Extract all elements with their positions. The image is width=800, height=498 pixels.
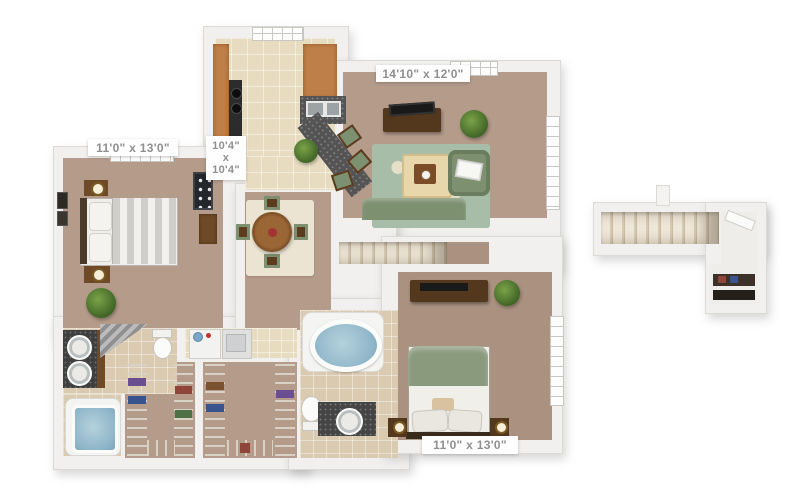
bedroom2-plant (494, 280, 520, 306)
hanging-clothes (206, 404, 224, 412)
interior-stairs (339, 242, 447, 264)
stored-shoes (240, 443, 250, 453)
toilet (153, 337, 172, 359)
kitchen-window (252, 27, 304, 41)
stove-burner (231, 103, 242, 114)
hanging-clothes (128, 378, 146, 386)
hanging-clothes (175, 386, 192, 394)
wall-art-frame-2 (57, 211, 68, 226)
dimension-label-bedroom1: 11'0" x 13'0" (88, 139, 178, 156)
washer-button (206, 333, 211, 338)
kitchen-dimension-width: 10'4" (212, 140, 240, 152)
vanity-sink (67, 361, 92, 386)
table-lamp (393, 421, 406, 434)
bed1-striped-duvet (112, 198, 177, 264)
counter-plant (294, 139, 318, 163)
bedroom1-dresser (199, 214, 217, 244)
floor-plan-canvas: 11'0" x 13'0" 10'4" x 10'4" 14'10" x 12'… (0, 0, 800, 498)
dimension-label-bedroom2: 11'0" x 13'0" (422, 436, 518, 454)
hanging-clothes (276, 390, 294, 398)
vanity-sink (67, 335, 92, 360)
roof-fin (656, 185, 670, 206)
closet-wire-shelf (147, 440, 175, 456)
hanging-clothes (175, 410, 192, 418)
vanity-sink (336, 408, 363, 435)
bed1-headboard (80, 198, 87, 264)
kitchen-floor-south (245, 156, 335, 190)
stove-burner (231, 88, 242, 99)
hanging-clothes (206, 382, 224, 390)
bed2-pillow-1 (411, 409, 448, 433)
bed1-pillow-2 (89, 233, 112, 262)
dining-chair (236, 224, 250, 240)
wall-art-frame-1 (57, 192, 68, 209)
entry-closet-shelf (713, 290, 755, 300)
stored-items (730, 276, 738, 283)
bed1-pillow-1 (89, 202, 112, 231)
dining-chair (264, 196, 280, 210)
closet-wire-shelf (227, 440, 273, 456)
dryer-lid (226, 334, 246, 352)
stored-items (718, 276, 726, 283)
living-plant (460, 110, 488, 138)
tray-plate (421, 170, 431, 180)
water-heater (254, 330, 280, 356)
kitchen-cabinets-right (303, 44, 337, 98)
table-centerpiece (268, 228, 277, 237)
kitchen-dimension-separator: x (223, 152, 229, 164)
rectangular-bathtub (72, 405, 118, 453)
sink-basin-2 (325, 101, 341, 117)
hallway-floor (447, 242, 489, 264)
bedroom2-window (550, 316, 564, 406)
hanging-clothes (128, 396, 146, 404)
potted-plant (86, 288, 116, 318)
sofa (362, 198, 466, 220)
bed2-green-coverlet (408, 346, 488, 386)
kitchen-dimension-depth: 10'4" (212, 164, 240, 176)
closet-wire-shelf (275, 364, 295, 456)
washer-dial (193, 332, 203, 342)
living-window-right (546, 116, 560, 210)
dimension-label-kitchen: 10'4" x 10'4" (206, 136, 246, 180)
dimension-label-living: 14'10" x 12'0" (376, 65, 470, 82)
dining-chair (294, 224, 308, 240)
dining-chair (264, 254, 280, 268)
dresser-tv (420, 283, 468, 291)
bed2-pillow-2 (447, 409, 482, 433)
table-lamp (91, 182, 105, 196)
entry-stairs (601, 212, 719, 244)
table-lamp (92, 268, 106, 282)
oval-bathtub (310, 319, 382, 372)
table-lamp (495, 421, 508, 434)
